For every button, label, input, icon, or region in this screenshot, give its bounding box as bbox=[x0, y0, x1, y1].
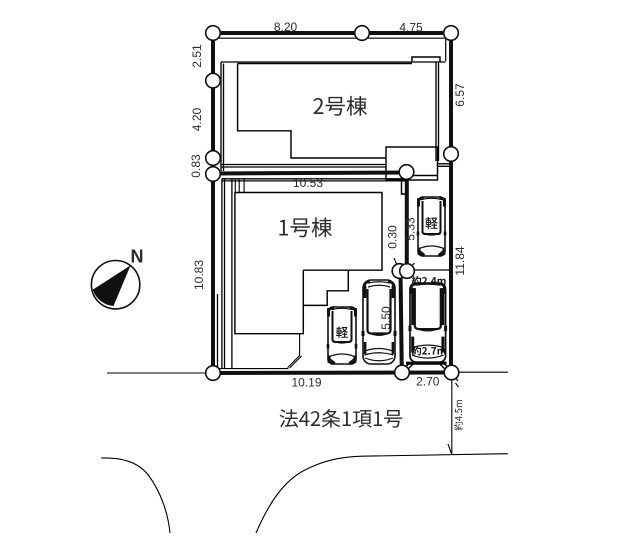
svg-text:2.70: 2.70 bbox=[416, 375, 440, 389]
svg-text:6.57: 6.57 bbox=[453, 83, 467, 107]
svg-text:8.20: 8.20 bbox=[274, 20, 298, 34]
svg-text:0.30: 0.30 bbox=[386, 225, 400, 249]
svg-text:0.83: 0.83 bbox=[189, 154, 203, 178]
svg-text:5.50: 5.50 bbox=[379, 306, 393, 330]
svg-text:N: N bbox=[131, 247, 144, 267]
svg-text:4.20: 4.20 bbox=[190, 107, 204, 131]
svg-text:10.19: 10.19 bbox=[291, 376, 321, 390]
svg-text:11.84: 11.84 bbox=[453, 246, 467, 275]
svg-text:5.33: 5.33 bbox=[404, 217, 418, 241]
svg-text:10.83: 10.83 bbox=[192, 260, 206, 290]
svg-text:4.75: 4.75 bbox=[399, 21, 423, 35]
svg-text:2.51: 2.51 bbox=[190, 44, 204, 68]
svg-text:10.53: 10.53 bbox=[293, 176, 323, 190]
